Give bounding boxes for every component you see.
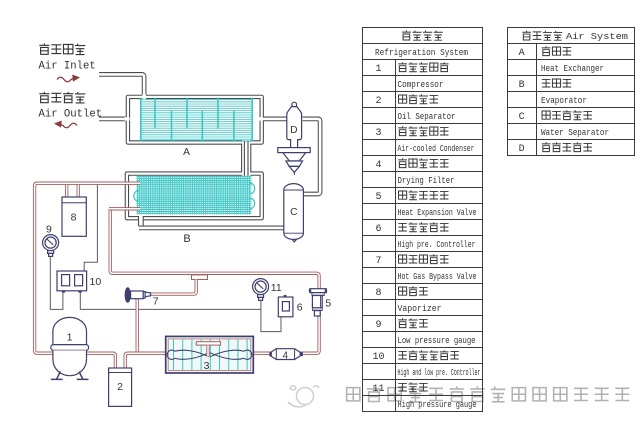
svg-text:2: 2 (117, 381, 123, 393)
svg-text:Heat Exchanger: Heat Exchanger (541, 63, 604, 74)
svg-text:1: 1 (67, 332, 73, 344)
svg-text:High and low pre. Controller: High and low pre. Controller (398, 367, 481, 378)
svg-text:9: 9 (46, 223, 52, 235)
svg-text:3: 3 (375, 128, 381, 139)
svg-text:Compressor: Compressor (398, 79, 444, 90)
svg-text:3: 3 (204, 360, 210, 372)
svg-text:A: A (183, 147, 190, 158)
svg-text:Air System: Air System (566, 31, 628, 42)
svg-text:Vaporizer: Vaporizer (398, 303, 442, 314)
svg-text:A: A (519, 48, 525, 59)
svg-text:Evaporator: Evaporator (541, 95, 587, 106)
svg-text:2: 2 (375, 96, 381, 107)
svg-text:1: 1 (375, 64, 381, 75)
svg-text:C: C (290, 207, 297, 218)
svg-text:10: 10 (90, 276, 102, 288)
svg-text:High pressure gauge: High pressure gauge (398, 399, 477, 410)
svg-text:11: 11 (271, 282, 282, 294)
svg-text:Air Outlet: Air Outlet (39, 109, 103, 121)
svg-text:8: 8 (375, 288, 381, 299)
svg-text:C: C (519, 112, 525, 123)
svg-text:4: 4 (375, 160, 381, 171)
svg-text:6: 6 (375, 224, 381, 235)
svg-text:9: 9 (375, 320, 381, 331)
svg-text:High pre. Controller: High pre. Controller (398, 239, 476, 250)
svg-text:D: D (519, 144, 525, 155)
svg-text:5: 5 (375, 192, 381, 203)
svg-text:B: B (183, 233, 190, 245)
svg-text:5: 5 (325, 297, 331, 309)
svg-text:Oil Separator: Oil Separator (398, 111, 456, 122)
svg-text:4: 4 (283, 350, 289, 361)
svg-text:Heat Expansion Valve: Heat Expansion Valve (398, 207, 477, 218)
svg-text:Water Separator: Water Separator (541, 127, 609, 138)
svg-text:Air Inlet: Air Inlet (39, 61, 96, 73)
svg-text:Hot Gas Bypass Valve: Hot Gas Bypass Valve (398, 271, 477, 282)
svg-text:Low pressure gauge: Low pressure gauge (398, 335, 476, 346)
svg-text:D: D (290, 125, 297, 136)
svg-text:10: 10 (372, 352, 384, 363)
svg-text:7: 7 (153, 296, 159, 308)
svg-text:6: 6 (297, 301, 303, 313)
svg-text:Refrigeration System: Refrigeration System (375, 47, 468, 58)
svg-text:B: B (519, 80, 525, 91)
svg-text:Drying Filter: Drying Filter (398, 175, 455, 186)
svg-text:11: 11 (372, 384, 384, 395)
svg-text:8: 8 (71, 212, 77, 224)
svg-text:Air-cooled Condenser: Air-cooled Condenser (398, 143, 475, 154)
svg-text:7: 7 (375, 256, 381, 267)
